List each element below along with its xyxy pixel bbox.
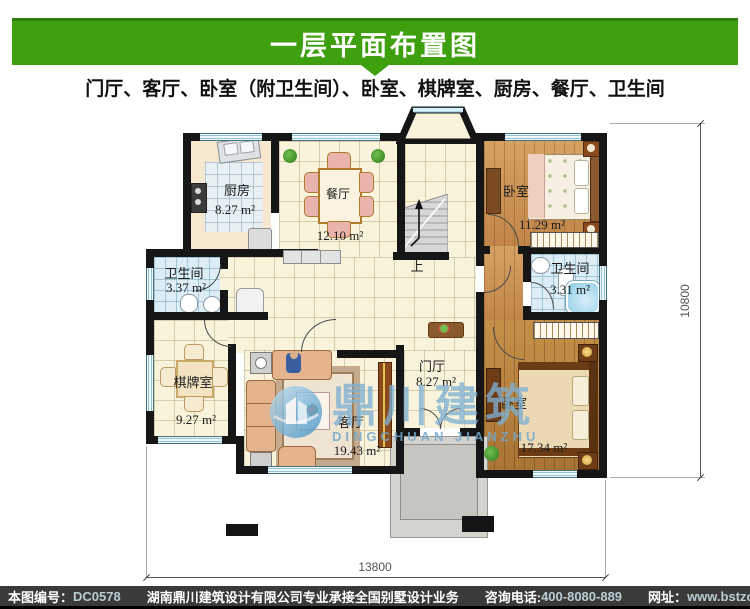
watermark-en-text: DINGCHUAN JIANZHU bbox=[332, 429, 539, 444]
kitchen-window bbox=[200, 133, 262, 141]
person-head bbox=[290, 351, 298, 359]
footer-bar: 本图编号： DC0578 湖南鼎川建筑设计有限公司专业承接全国别墅设计业务 咨询… bbox=[0, 586, 750, 606]
plant-icon bbox=[283, 149, 297, 163]
wall bbox=[476, 133, 484, 266]
dining-chair-l2 bbox=[304, 196, 319, 217]
chess-area: 9.27 m² bbox=[161, 412, 231, 428]
dining-chair-r1 bbox=[359, 172, 374, 193]
bed-headboard bbox=[589, 362, 598, 456]
wall bbox=[220, 257, 228, 269]
wall bbox=[599, 133, 607, 478]
watermark: 鼎川建筑 DINGCHUAN JIANZHU bbox=[268, 384, 578, 448]
staircase bbox=[398, 194, 448, 254]
hall-shoe-cabinet bbox=[283, 250, 341, 264]
wall bbox=[183, 133, 191, 257]
dim-tick bbox=[602, 574, 609, 581]
watermark-cn-text: 鼎川建筑 bbox=[332, 384, 539, 428]
bedroom-bottom-wardrobe bbox=[533, 322, 599, 339]
kitchen-sink-basins bbox=[223, 142, 239, 156]
dining-name: 餐厅 bbox=[318, 185, 358, 202]
kitchen-sink-basin2 bbox=[239, 140, 255, 154]
chess-chair bbox=[184, 396, 204, 412]
chess-window-bottom bbox=[158, 436, 222, 444]
bath-left-area: 3.37 m² bbox=[151, 280, 221, 296]
bedroom-top-area: 11.29 m² bbox=[507, 217, 577, 233]
lamp-glow bbox=[582, 455, 592, 465]
living-sofa-top bbox=[272, 350, 332, 380]
wall bbox=[228, 312, 268, 320]
bedroom-top-wardrobe bbox=[530, 232, 599, 248]
footer-id-label: 本图编号： bbox=[8, 587, 73, 606]
chess-name: 棋牌室 bbox=[163, 372, 223, 391]
dim-line-bottom bbox=[146, 577, 606, 578]
bedroom-top-window bbox=[505, 133, 581, 141]
dim-width-label: 13800 bbox=[345, 560, 405, 574]
dining-chair-l1 bbox=[304, 172, 319, 193]
bath-left-toilet bbox=[180, 294, 198, 313]
plant-icon bbox=[371, 149, 385, 163]
dining-window bbox=[292, 133, 380, 141]
dining-chair-top bbox=[327, 152, 351, 169]
garden-wall-block bbox=[226, 524, 258, 536]
bed-pillow bbox=[574, 188, 589, 214]
extension-line bbox=[610, 123, 705, 124]
extension-line bbox=[610, 477, 705, 478]
porch-pillar bbox=[462, 516, 494, 532]
stove-burner bbox=[195, 188, 201, 194]
plant-icon bbox=[484, 446, 499, 461]
bedroom-bottom-window bbox=[533, 470, 577, 478]
footer-web-value: www.bstzcs.com bbox=[687, 589, 750, 604]
wall bbox=[337, 350, 404, 358]
bay-window bbox=[396, 104, 480, 144]
dining-chair-r2 bbox=[359, 196, 374, 217]
bedroom-top-name: 卧室 bbox=[491, 181, 541, 200]
dingchuan-logo-icon bbox=[268, 384, 324, 440]
table-lamp bbox=[255, 357, 267, 369]
chess-chair bbox=[184, 344, 204, 360]
bed-frame-top bbox=[518, 362, 592, 370]
header-bar: 一层平面布置图 bbox=[12, 18, 738, 65]
footer-web-label: 网址： bbox=[648, 587, 687, 606]
stairs-up-label: 上 bbox=[407, 256, 427, 275]
dim-height-label: 10800 bbox=[678, 266, 692, 336]
extension-line bbox=[146, 446, 147, 577]
dim-line-right bbox=[700, 123, 701, 478]
bath-right-area: 3.31 m² bbox=[535, 282, 605, 298]
floor-plan: 上 厨房 8.27 m² 餐厅 12.10 m² bbox=[0, 100, 750, 580]
wall bbox=[523, 312, 607, 320]
wall bbox=[220, 290, 228, 316]
wall bbox=[484, 246, 490, 254]
wall bbox=[397, 133, 405, 252]
wall bbox=[228, 344, 236, 444]
nightstand-lamp bbox=[587, 144, 595, 152]
page-title: 一层平面布置图 bbox=[270, 24, 480, 63]
wall bbox=[271, 133, 279, 213]
console-flowers bbox=[438, 324, 450, 333]
kitchen-name: 厨房 bbox=[212, 180, 262, 199]
dining-area: 12.10 m² bbox=[305, 228, 375, 244]
footer-phone-value: 400-8080-889 bbox=[541, 589, 622, 604]
foyer-name: 门厅 bbox=[412, 356, 452, 375]
footer-company: 湖南鼎川建筑设计有限公司专业承接全国别墅设计业务 bbox=[147, 587, 459, 606]
bath-right-name: 卫生间 bbox=[535, 258, 605, 277]
wall bbox=[146, 312, 228, 320]
bed-pillow bbox=[574, 160, 589, 186]
extension-line bbox=[605, 480, 606, 577]
chess-window-left bbox=[146, 355, 154, 411]
lamp-glow bbox=[582, 347, 592, 357]
porch-platform bbox=[400, 444, 478, 520]
wall bbox=[523, 254, 531, 282]
footer-id-value: DC0578 bbox=[73, 589, 121, 604]
bath-left-sink bbox=[203, 296, 221, 313]
footer-phone-label: 咨询电话: bbox=[485, 587, 541, 606]
kitchen-area: 8.27 m² bbox=[200, 202, 270, 218]
living-window bbox=[268, 466, 352, 474]
room-list-subtitle: 门厅、客厅、卧室（附卫生间）、卧室、棋牌室、厨房、餐厅、卫生间 bbox=[0, 74, 750, 101]
